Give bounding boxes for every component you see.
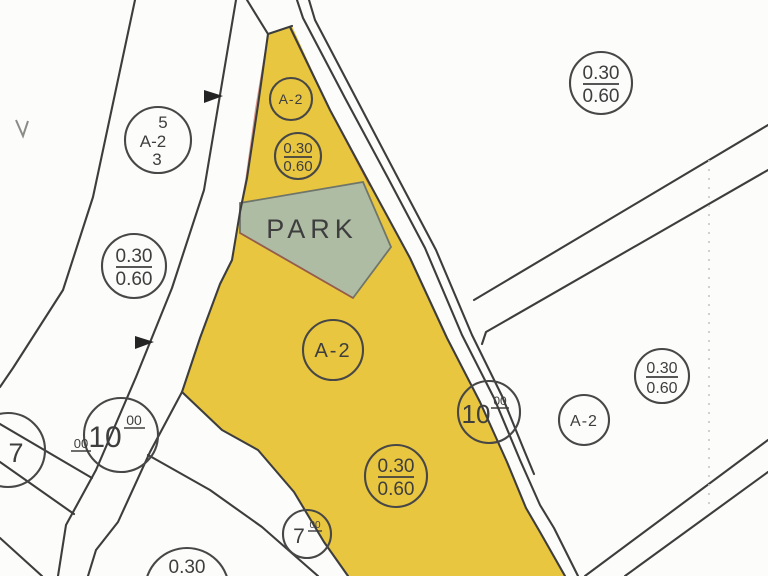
zoning-map-page: 5 A-2 3 0.30 0.60 A-2 0.30 0.60 PARK A-2… [0, 0, 768, 576]
block-label-line2: A-2 [140, 132, 166, 151]
left-ratio-num: 0.30 [116, 246, 153, 267]
right-ratio-num: 0.30 [646, 360, 677, 377]
top-zone-label: A-2 [279, 91, 304, 107]
right-ratio-den: 0.60 [646, 380, 677, 397]
bottom-ratio-num: 0.30 [169, 557, 206, 576]
zoning-map-canvas: 5 A-2 3 0.30 0.60 A-2 0.30 0.60 PARK A-2… [0, 0, 768, 576]
topright-ratio-den: 0.60 [583, 86, 620, 107]
dim-left-sup: 00 [126, 412, 142, 428]
block-label-line3: 3 [152, 150, 161, 169]
dim-left-value: 10 [88, 421, 121, 454]
left-ratio-den: 0.60 [116, 269, 153, 290]
dim-bottom-value: 7 [293, 525, 305, 548]
topright-ratio-num: 0.30 [583, 63, 620, 84]
dim-right-sup: 00 [493, 394, 507, 408]
park-label: PARK [266, 214, 358, 244]
dim-left-edge-value: 7 [8, 438, 23, 468]
right-zone-label: A-2 [570, 413, 598, 430]
top-ratio-den: 0.60 [283, 158, 312, 175]
block-label-line1: 5 [158, 113, 167, 132]
main-ratio-num: 0.30 [378, 456, 415, 477]
main-ratio-den: 0.60 [378, 479, 415, 500]
main-zone-label: A-2 [314, 340, 351, 362]
dim-left-edge-sup: 00 [74, 436, 88, 451]
dim-right-value: 10 [462, 399, 491, 429]
top-ratio-num: 0.30 [283, 140, 312, 157]
dim-bottom-sup: 00 [309, 520, 321, 531]
